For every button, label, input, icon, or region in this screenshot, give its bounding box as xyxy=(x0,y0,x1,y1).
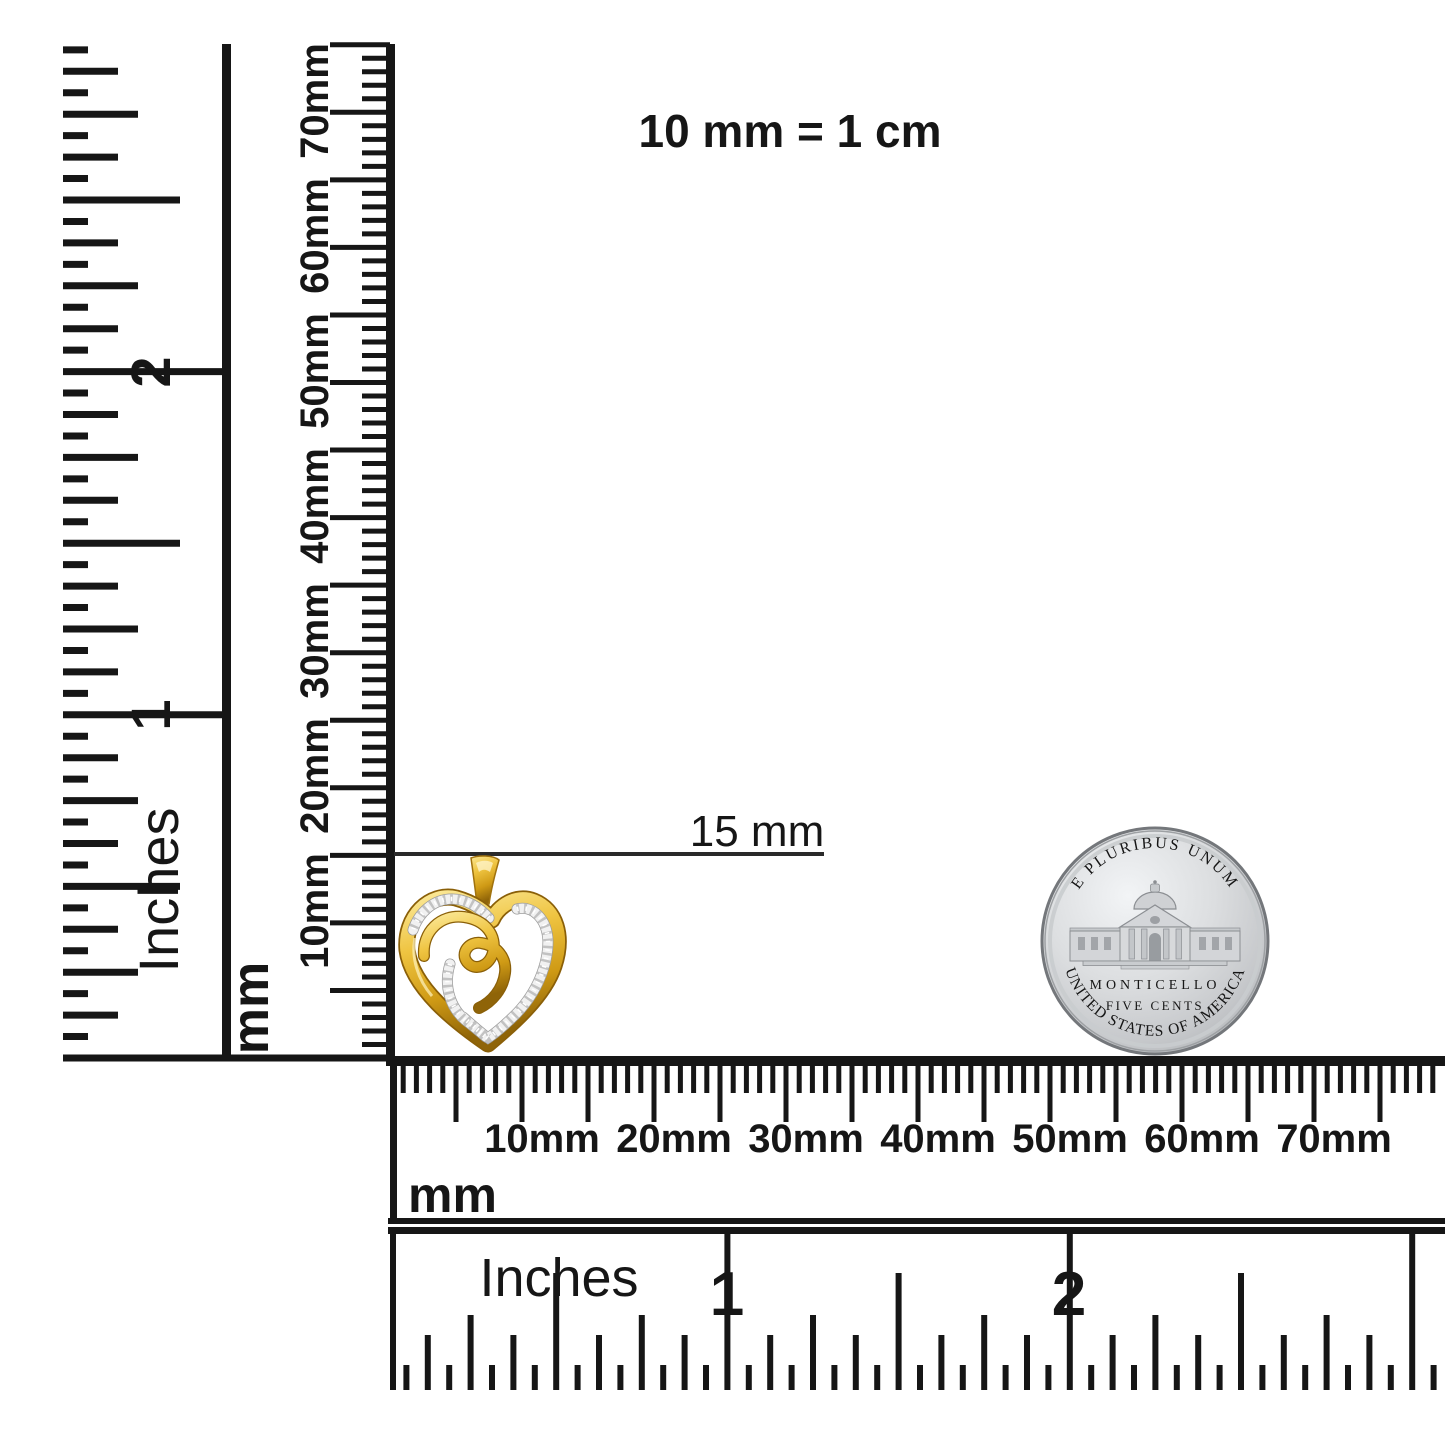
bottom-inches-ruler-spine xyxy=(388,1227,1445,1234)
bottom-mm-label-40: 40mm xyxy=(880,1117,996,1161)
left-inches-unit-label: Inches xyxy=(127,808,190,973)
scale-note: 10 mm = 1 cm xyxy=(638,105,941,157)
bottom-mm-ruler-bottom-edge xyxy=(388,1218,1445,1224)
building-base xyxy=(1083,961,1227,966)
left-inches-ruler-spine xyxy=(222,44,231,1060)
left-mm-ruler-ticks xyxy=(330,45,390,1045)
coin-denomination: FIVE CENTS xyxy=(1106,998,1204,1013)
bottom-inches-ruler: Inches 1 2 xyxy=(388,1227,1445,1390)
bottom-mm-label-70: 70mm xyxy=(1276,1117,1392,1161)
nickel-coin: E PLURIBUS UNUM MONTICELLO FIVE CENTS UN… xyxy=(1042,828,1268,1054)
size-reference-diagram: 2 1 Inches 10mm 20mm 30mm 40mm 50mm 60mm… xyxy=(0,0,1445,1445)
pendant-measurement: 15 mm xyxy=(394,807,824,856)
building-finial xyxy=(1153,880,1157,884)
left-mm-ruler-spine xyxy=(386,44,395,1066)
building-steps xyxy=(1121,966,1189,970)
heart-pendant xyxy=(407,856,558,1044)
left-mm-label-10: 10mm xyxy=(293,853,337,969)
left-mm-unit-label: mm xyxy=(222,962,280,1054)
left-mm-label-20: 20mm xyxy=(293,718,337,834)
bottom-mm-unit-label: mm xyxy=(408,1167,497,1223)
portico-door xyxy=(1149,933,1161,961)
left-inches-number-1: 1 xyxy=(119,699,182,730)
bottom-mm-label-60: 60mm xyxy=(1144,1117,1260,1161)
left-mm-label-70: 70mm xyxy=(293,43,337,159)
bottom-inches-number-2: 2 xyxy=(1052,1260,1086,1329)
size-chart-scene: 2 1 Inches 10mm 20mm 30mm 40mm 50mm 60mm… xyxy=(0,0,1445,1445)
bottom-inches-unit-label: Inches xyxy=(479,1248,638,1308)
bottom-mm-ruler-spine xyxy=(386,1056,1445,1066)
left-mm-ruler: 10mm 20mm 30mm 40mm 50mm 60mm 70mm mm xyxy=(222,43,395,1066)
left-mm-label-60: 60mm xyxy=(293,178,337,294)
bottom-mm-label-20: 20mm xyxy=(616,1117,732,1161)
bottom-mm-label-50: 50mm xyxy=(1012,1117,1128,1161)
bottom-mm-ruler-left-edge xyxy=(390,1066,397,1220)
bottom-inches-number-1: 1 xyxy=(710,1260,744,1329)
bottom-mm-label-10: 10mm xyxy=(484,1117,600,1161)
left-mm-label-30: 30mm xyxy=(293,583,337,699)
coin-building-label: MONTICELLO xyxy=(1090,978,1221,993)
bottom-mm-ruler-ticks xyxy=(403,1064,1433,1122)
left-inches-ruler: 2 1 Inches xyxy=(63,44,392,1060)
bottom-mm-ruler: 10mm 20mm 30mm 40mm 50mm 60mm 70mm mm xyxy=(386,1056,1445,1224)
pendant-size-label: 15 mm xyxy=(690,807,824,856)
pediment-window xyxy=(1150,916,1160,924)
building-cupola xyxy=(1151,884,1160,892)
left-inches-number-2: 2 xyxy=(119,356,182,387)
left-mm-label-50: 50mm xyxy=(293,313,337,429)
left-mm-label-40: 40mm xyxy=(293,448,337,564)
bottom-inches-ruler-left-edge xyxy=(390,1227,396,1390)
bottom-mm-label-30: 30mm xyxy=(748,1117,864,1161)
